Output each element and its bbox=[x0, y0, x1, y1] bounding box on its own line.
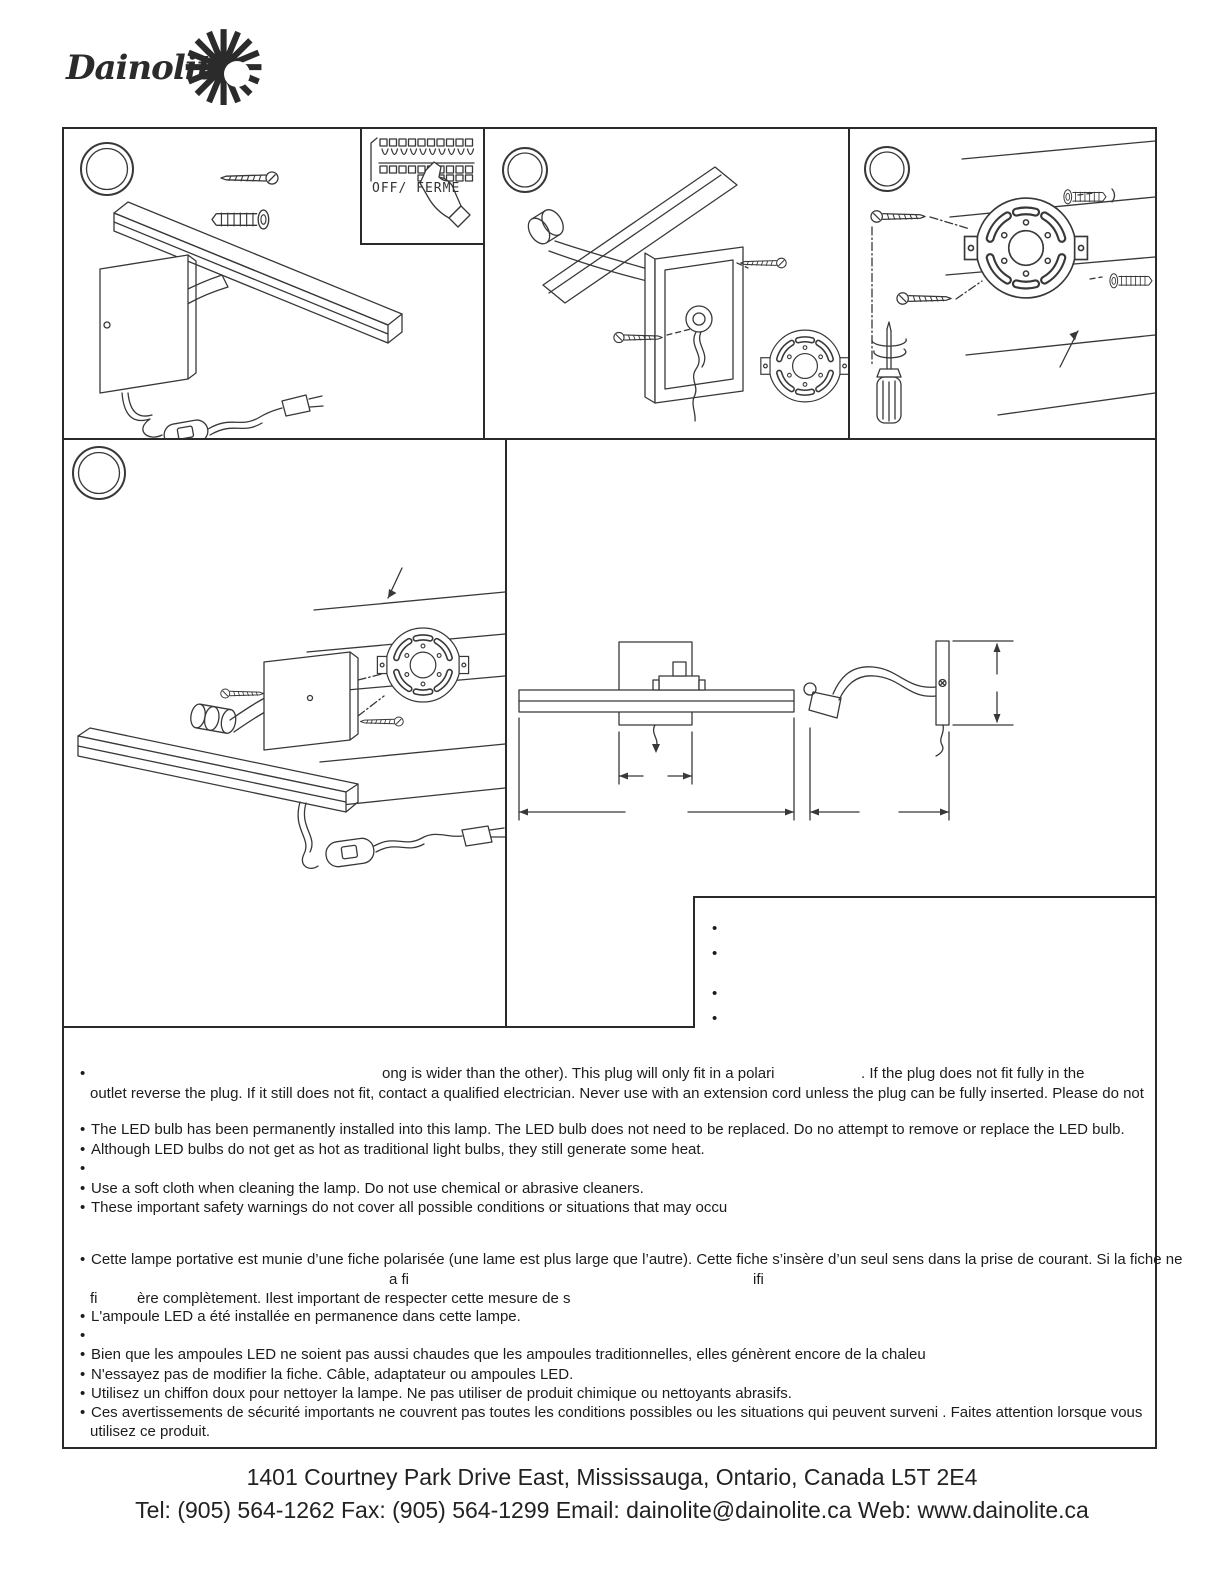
footer-contact: Tel: (905) 564-1262 Fax: (905) 564-1299 … bbox=[0, 1497, 1224, 1524]
screw-icon bbox=[741, 258, 787, 268]
plug-icon bbox=[462, 826, 505, 846]
mounting-plate-icon bbox=[761, 330, 848, 402]
warning-line: utilisez ce produit. bbox=[90, 1423, 210, 1440]
list-bullet: • bbox=[712, 920, 717, 937]
list-bullet: • bbox=[712, 945, 717, 962]
warning-line: ong is wider than the other). This plug … bbox=[382, 1065, 774, 1082]
notes-box: • • • • bbox=[695, 898, 1157, 1028]
screw-icon bbox=[221, 172, 278, 184]
step-2-drawing bbox=[485, 129, 848, 438]
step-circle bbox=[503, 148, 547, 192]
wall-anchor-icon bbox=[212, 210, 269, 229]
power-cord-drawing bbox=[122, 393, 323, 438]
warning-line: . If the plug does not fit fully in the bbox=[861, 1065, 1084, 1082]
warning-line: •These important safety warnings do not … bbox=[80, 1199, 727, 1216]
front-view bbox=[519, 642, 794, 820]
screw-icon bbox=[221, 689, 264, 698]
warning-line: •L'ampoule LED a été installée en perman… bbox=[80, 1308, 521, 1325]
warning-line: • bbox=[80, 1065, 91, 1082]
breaker-off-label: OFF/ FERME bbox=[372, 181, 460, 196]
instruction-grid: OFF/ FERME bbox=[62, 127, 1157, 1449]
screw-icon bbox=[871, 211, 925, 222]
warning-line: a fi bbox=[389, 1271, 409, 1288]
warning-line: ère complètement. Ilest important de res… bbox=[137, 1290, 571, 1307]
arrow-icon bbox=[388, 568, 402, 598]
warning-line: •Bien que les ampoules LED ne soient pas… bbox=[80, 1346, 926, 1363]
screwdriver-icon bbox=[872, 322, 906, 423]
warning-line: fi bbox=[90, 1290, 98, 1307]
warning-line: •Cette lampe portative est munie d’une f… bbox=[80, 1251, 1182, 1268]
picture-light-drawing bbox=[100, 202, 402, 393]
side-view bbox=[804, 641, 1013, 820]
warning-line: •Although LED bulbs do not get as hot as… bbox=[80, 1141, 705, 1158]
warning-line: •Utilisez un chiffon doux pour nettoyer … bbox=[80, 1385, 792, 1402]
warning-line: •Use a soft cloth when cleaning the lamp… bbox=[80, 1180, 644, 1197]
step-3-drawing bbox=[850, 129, 1155, 438]
wall-anchor-icon bbox=[1064, 190, 1106, 204]
warning-line: •Ces avertissements de sécurité importan… bbox=[80, 1404, 1142, 1421]
list-bullet: • bbox=[712, 985, 717, 1002]
instruction-sheet-page: Dainolite ✺ bbox=[0, 0, 1224, 1584]
wall-anchor-icon bbox=[1110, 274, 1152, 288]
footer-address: 1401 Courtney Park Drive East, Mississau… bbox=[0, 1464, 1224, 1491]
step-circle bbox=[73, 447, 125, 499]
warning-line: • bbox=[80, 1327, 91, 1344]
warning-line: • bbox=[80, 1160, 91, 1177]
warning-line: •The LED bulb has been permanently insta… bbox=[80, 1121, 1125, 1138]
lamp-head-icon bbox=[189, 703, 237, 734]
power-cord-drawing bbox=[298, 802, 505, 868]
screw-icon bbox=[897, 293, 951, 304]
warning-line: ifi bbox=[753, 1271, 764, 1288]
screw-icon bbox=[361, 717, 404, 726]
warning-line: •N'essayez pas de modifier la fiche. Câb… bbox=[80, 1366, 573, 1383]
list-bullet: • bbox=[712, 1010, 717, 1027]
starburst-icon: ✺ bbox=[180, 10, 298, 128]
lamp-head-icon bbox=[524, 206, 568, 248]
plug-icon bbox=[282, 395, 323, 416]
warning-line: outlet reverse the plug. If it still doe… bbox=[90, 1085, 1144, 1102]
safety-warnings-text: • ong is wider than the other). This plu… bbox=[64, 1028, 1157, 1449]
inline-switch-icon bbox=[162, 418, 209, 438]
step-circle bbox=[81, 143, 133, 195]
step-4-drawing bbox=[64, 440, 505, 1028]
step-circle bbox=[865, 147, 909, 191]
arrow-icon bbox=[1060, 331, 1078, 367]
mounting-plate-icon bbox=[965, 198, 1088, 298]
inline-switch-icon bbox=[324, 837, 375, 868]
